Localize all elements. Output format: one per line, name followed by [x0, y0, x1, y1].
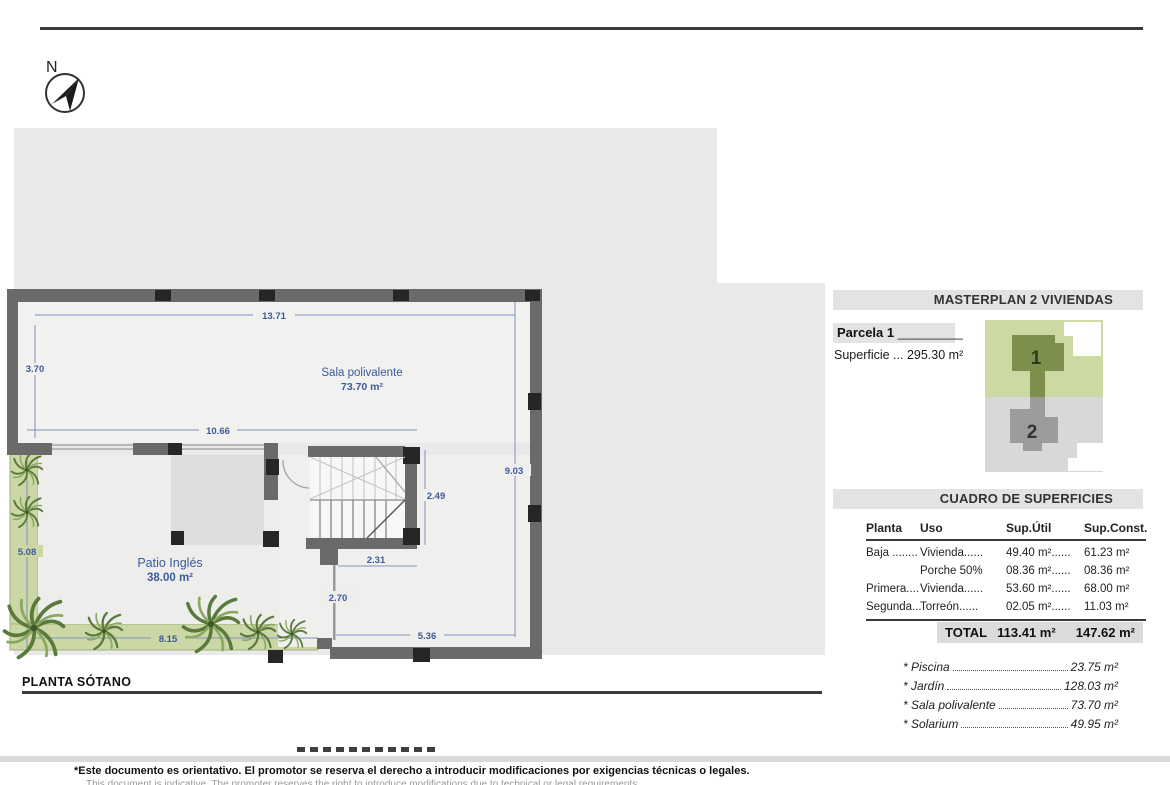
parcel-notch — [1073, 322, 1101, 356]
footer-divider — [0, 756, 1170, 762]
dim-top: 13.71 — [262, 311, 286, 322]
extra-value: 128.03 m² — [1064, 679, 1118, 693]
extras-list: * Piscina 23.75 m² * Jardín 128.03 m² * … — [903, 660, 1118, 736]
dim-stair-w: 2.31 — [367, 555, 386, 566]
patio-name: Patio Inglés — [137, 556, 202, 570]
total-label: TOTAL — [945, 625, 987, 640]
dotted-leader — [961, 727, 1067, 728]
table-cell: 49.40 m²...... — [1006, 544, 1084, 562]
table-cell: Porche 50% — [920, 562, 1006, 580]
table-cell: 61.23 m² — [1084, 544, 1146, 562]
extra-value: 23.75 m² — [1071, 660, 1118, 674]
compass-needle-icon — [66, 78, 79, 111]
extra-value: 49.95 m² — [1071, 717, 1118, 731]
plan-title-underline — [22, 691, 822, 694]
floor-plan-drawing: 13.71 3.70 10.66 9.03 5.08 2.49 2.31 2.7… — [0, 120, 830, 700]
sala-name: Sala polivalente — [321, 367, 402, 379]
total-util: 113.41 m² — [997, 625, 1056, 640]
dim-bottom-right: 5.36 — [418, 631, 437, 642]
site-key-plan: 1 2 — [985, 320, 1103, 472]
dim-upper-left: 3.70 — [26, 364, 45, 375]
building-neck — [1030, 397, 1045, 410]
dim-lower-left: 5.08 — [18, 547, 37, 558]
plot1-number: 1 — [1031, 348, 1042, 369]
parcel-notch — [1064, 322, 1075, 336]
disclaimer-line-es: *Este documento es orientativo. El promo… — [74, 765, 750, 777]
north-compass: N — [38, 52, 92, 116]
table-cell: Baja ........ — [866, 544, 920, 562]
patio-area: 38.00 m² — [147, 572, 193, 584]
dim-right: 9.03 — [505, 466, 524, 477]
list-item: * Solarium 49.95 m² — [903, 717, 1118, 736]
table-cell: 08.36 m²...... — [1006, 562, 1084, 580]
dotted-leader — [999, 708, 1068, 709]
list-item: * Sala polivalente 73.70 m² — [903, 698, 1118, 717]
plot2-number: 2 — [1027, 422, 1038, 443]
sala-area: 73.70 m² — [341, 381, 384, 393]
extra-label: * Piscina — [903, 660, 950, 674]
parcel-superficie: Superficie ... 295.30 m² — [834, 348, 963, 362]
table-cell: Primera.... — [866, 580, 920, 598]
table-cell: Torreón...... — [920, 598, 1006, 616]
table-rule — [866, 539, 1146, 541]
parcel-label: Parcela 1 _________ — [837, 325, 963, 340]
table-rule — [866, 619, 1146, 621]
table-cell: 08.36 m² — [1084, 562, 1146, 580]
top-border-line — [40, 27, 1143, 30]
surfaces-title-band: CUADRO DE SUPERFICIES — [833, 489, 1143, 509]
building-neck — [1030, 371, 1045, 397]
table-cell: 11.03 m² — [1084, 598, 1146, 616]
list-item: * Jardín 128.03 m² — [903, 679, 1118, 698]
plan-sheet: N — [0, 0, 1170, 785]
table-cell: Vivienda...... — [920, 544, 1006, 562]
disclaimer-line-en: This document is indicative. The promote… — [86, 779, 640, 785]
table-cell — [866, 562, 920, 580]
col-header-sup-const: Sup.Const. — [1084, 520, 1146, 537]
dim-bottom-left: 8.15 — [159, 634, 178, 645]
dim-stair-v: 2.49 — [427, 491, 446, 502]
parcel-notch — [1077, 443, 1103, 471]
dim-mid: 10.66 — [206, 426, 230, 437]
table-cell: Segunda... — [866, 598, 920, 616]
table-cell: Vivienda...... — [920, 580, 1006, 598]
total-bar: TOTAL 113.41 m² 147.62 m² — [937, 622, 1143, 643]
table-cell: 53.60 m²...... — [1006, 580, 1084, 598]
surfaces-table: Planta Uso Sup.Útil Sup.Const. Baja ....… — [866, 520, 1146, 624]
dim-passage: 2.70 — [329, 593, 348, 604]
north-label: N — [46, 59, 58, 76]
col-header-sup-util: Sup.Útil — [1006, 520, 1084, 537]
extra-label: * Jardín — [903, 679, 944, 693]
extra-label: * Sala polivalente — [903, 698, 996, 712]
col-header-uso: Uso — [920, 520, 1006, 537]
list-item: * Piscina 23.75 m² — [903, 660, 1118, 679]
dotted-leader — [953, 670, 1068, 671]
dotted-leader — [947, 689, 1061, 690]
extra-value: 73.70 m² — [1071, 698, 1118, 712]
clipped-text-remnant — [297, 747, 435, 752]
total-const: 147.62 m² — [1076, 625, 1135, 640]
plan-title: PLANTA SÓTANO — [22, 675, 131, 689]
parcel-notch — [1068, 458, 1080, 471]
parcel-label-text: Parcela 1 — [837, 325, 894, 340]
table-cell: 68.00 m² — [1084, 580, 1146, 598]
extra-label: * Solarium — [903, 717, 958, 731]
parcel-label-line: _________ — [898, 325, 963, 340]
table-cell: 02.05 m²...... — [1006, 598, 1084, 616]
col-header-planta: Planta — [866, 520, 920, 537]
masterplan-title-band: MASTERPLAN 2 VIVIENDAS — [833, 290, 1143, 310]
